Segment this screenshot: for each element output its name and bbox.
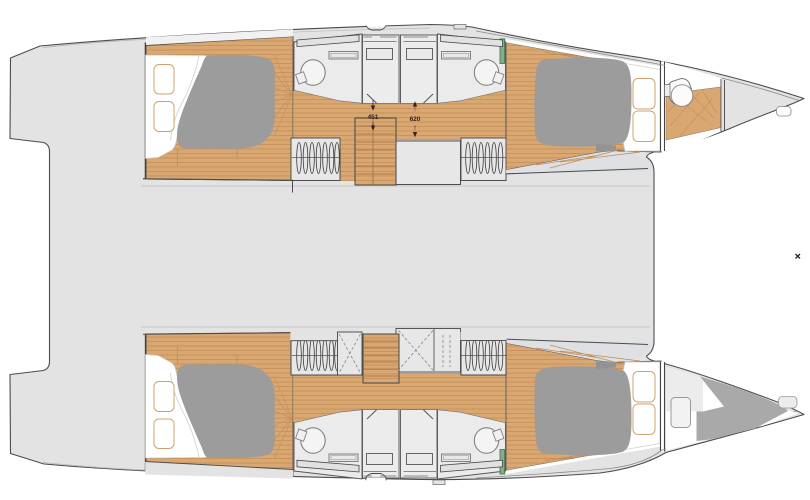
- svg-text:451: 451: [368, 114, 379, 121]
- svg-text:620: 620: [410, 116, 421, 123]
